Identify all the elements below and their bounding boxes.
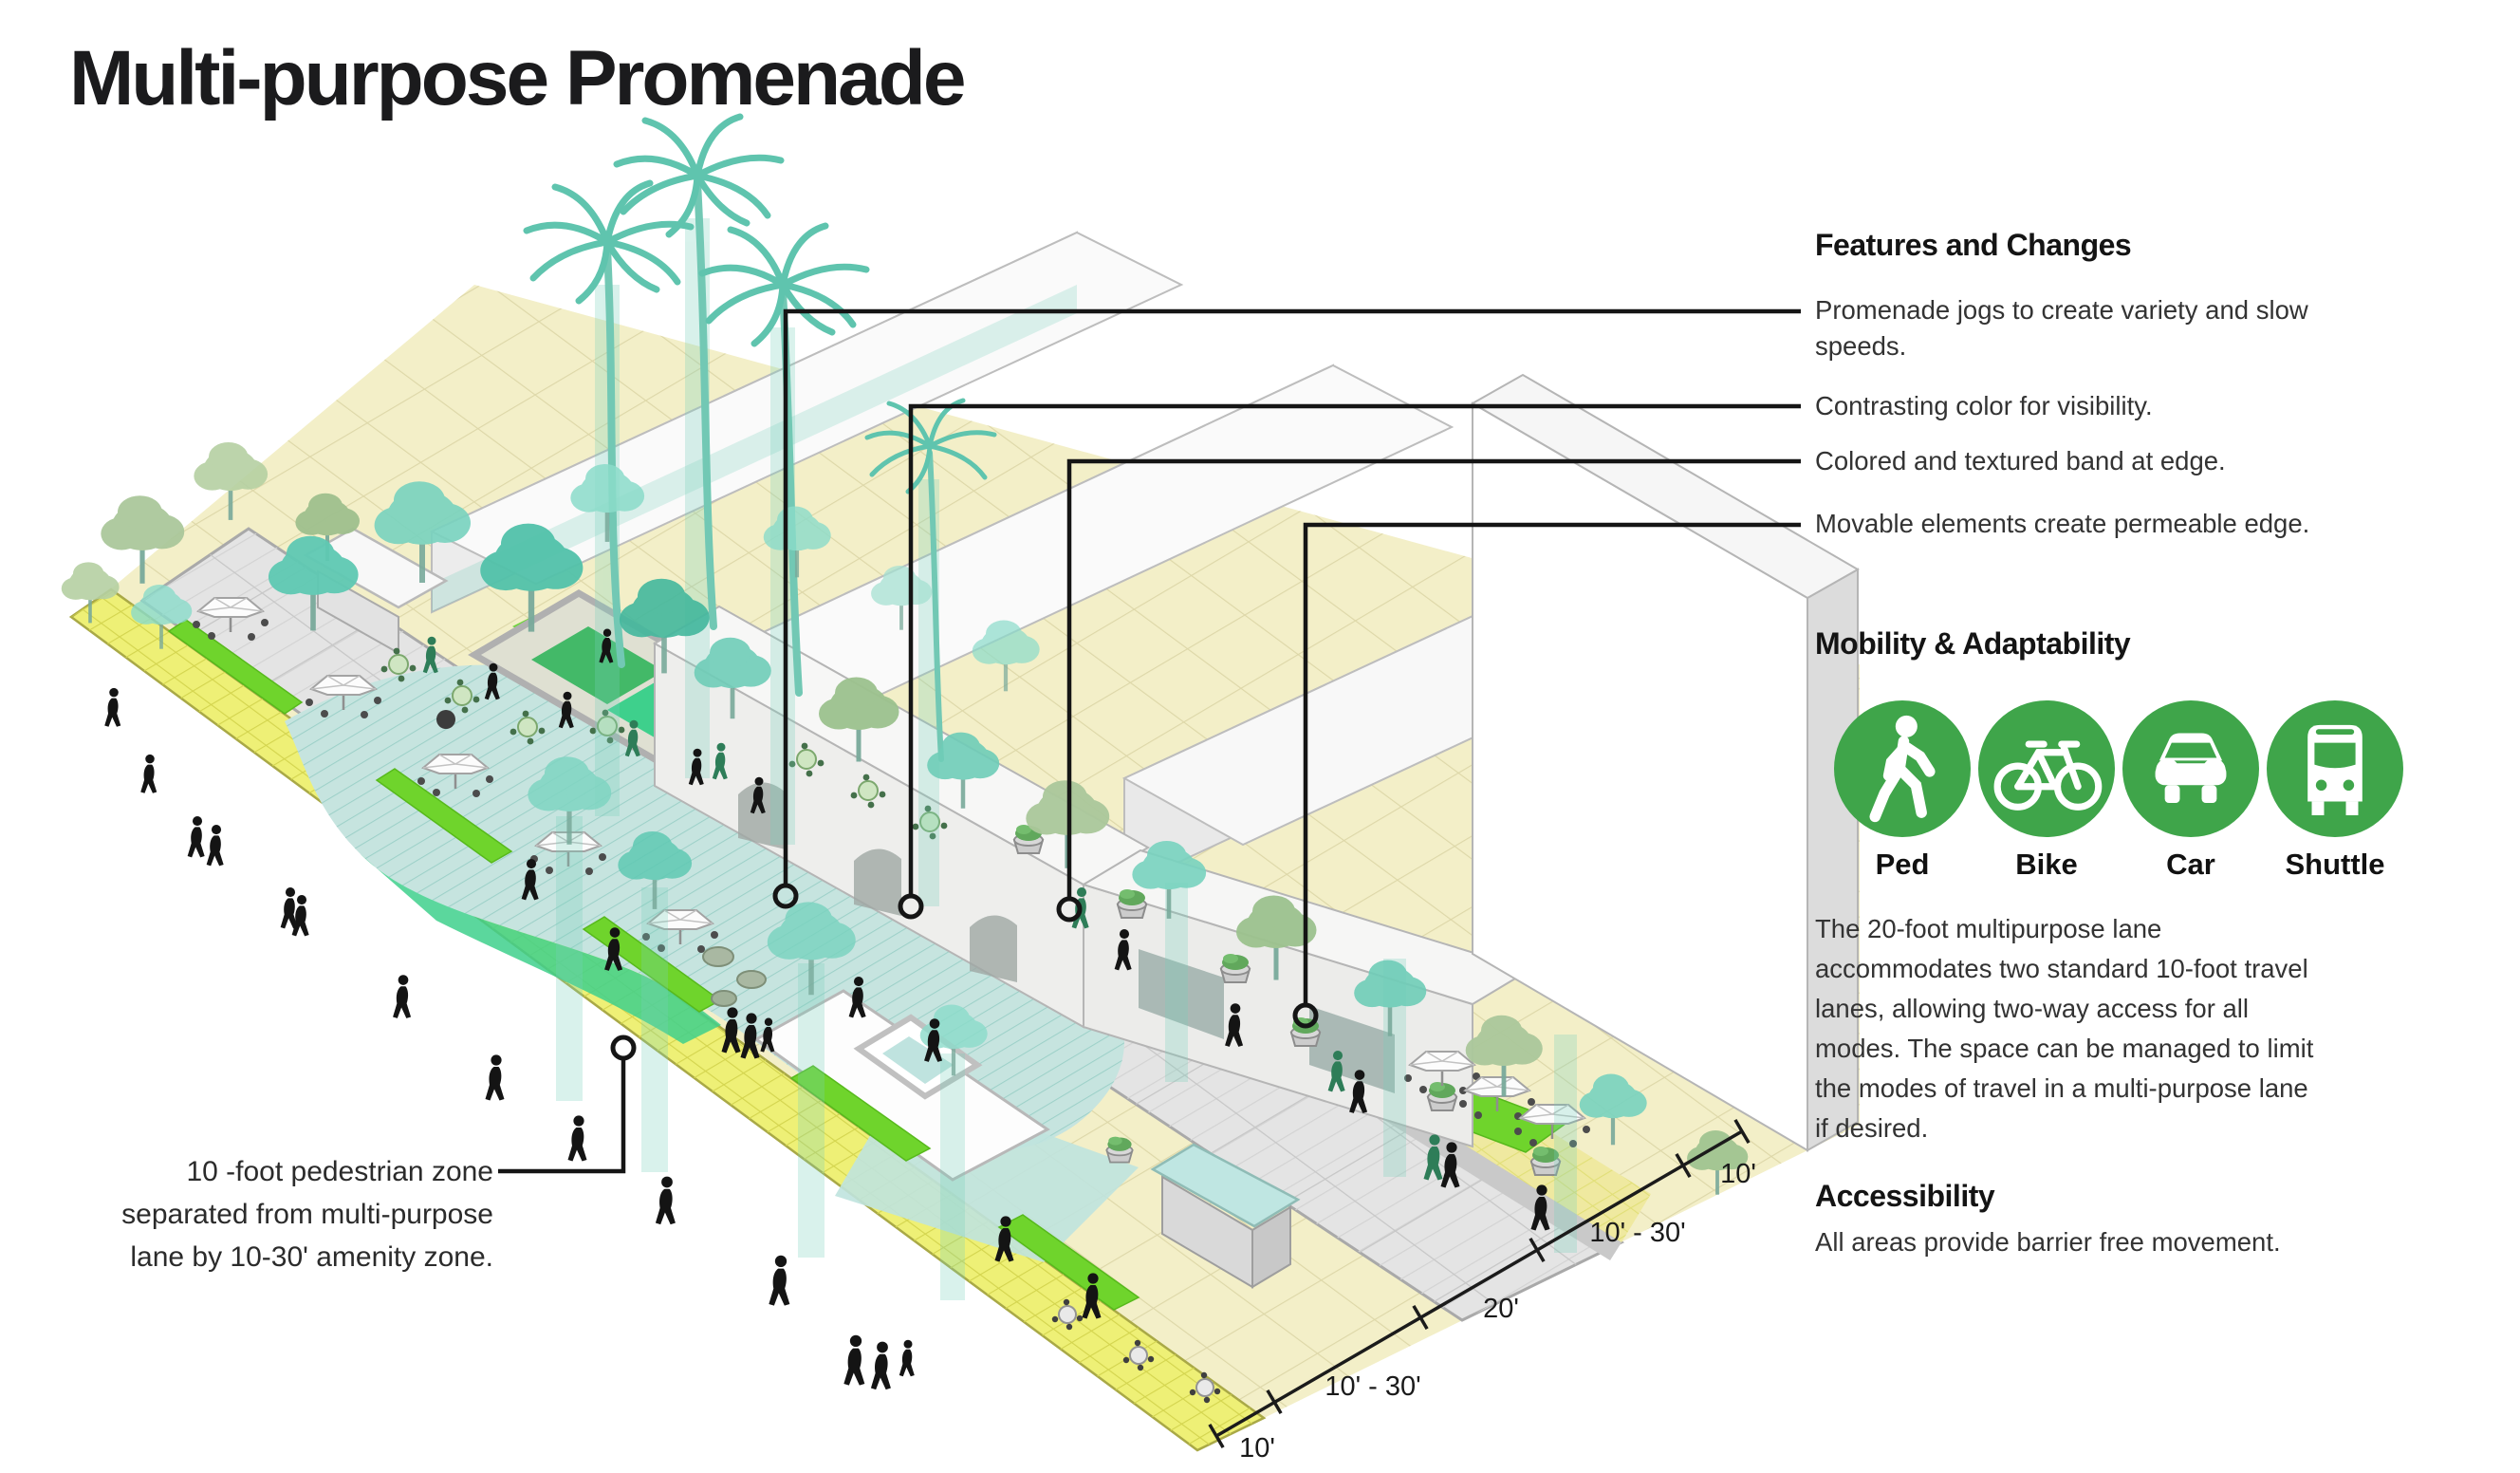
dimension-label: 10' - 30' xyxy=(1325,1371,1420,1402)
mode-car: Car xyxy=(2119,700,2263,882)
dimension-label: 10' xyxy=(1239,1433,1275,1464)
shuttle-bus-icon xyxy=(2267,700,2403,837)
dimension-label: 10' - 30' xyxy=(1589,1218,1685,1248)
mode-label: Bike xyxy=(1974,848,2119,882)
mobility-description: The 20-foot multipurpose lane accommodat… xyxy=(1815,909,2318,1148)
mode-label: Shuttle xyxy=(2263,848,2407,882)
mobility-heading: Mobility & Adaptability xyxy=(1815,626,2130,662)
feature-item-2: Contrasting color for visibility. xyxy=(1815,388,2346,424)
car-icon xyxy=(2122,700,2259,837)
mode-bike: Bike xyxy=(1974,700,2119,882)
callout-marker-left xyxy=(613,1037,634,1058)
mode-shuttle: Shuttle xyxy=(2263,700,2407,882)
pedestrian-icon xyxy=(1834,700,1971,837)
mode-label: Ped xyxy=(1830,848,1974,882)
mobility-modes: Ped Bike Car xyxy=(1830,700,2494,882)
page: Multi-purpose Promenade xyxy=(0,0,2520,1473)
accessibility-heading: Accessibility xyxy=(1815,1179,1994,1214)
mode-label: Car xyxy=(2119,848,2263,882)
pedestrian-zone-note: 10 -foot pedestrian zone separated from … xyxy=(114,1150,493,1278)
accessibility-body: All areas provide barrier free movement. xyxy=(1815,1224,2422,1260)
feature-item-1: Promenade jogs to create variety and slo… xyxy=(1815,292,2346,364)
bicycle-icon xyxy=(1978,700,2115,837)
dimension-label: 20' xyxy=(1483,1294,1519,1324)
features-heading: Features and Changes xyxy=(1815,228,2131,263)
feature-item-3: Colored and textured band at edge. xyxy=(1815,443,2346,479)
dimension-label: 10' xyxy=(1720,1159,1756,1189)
mode-ped: Ped xyxy=(1830,700,1974,882)
feature-item-4: Movable elements create permeable edge. xyxy=(1815,506,2346,542)
